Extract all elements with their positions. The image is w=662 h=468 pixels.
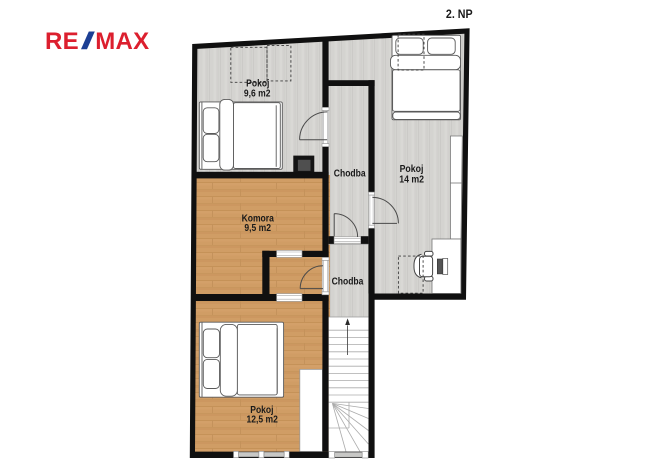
svg-text:Chodba: Chodba xyxy=(334,168,366,180)
svg-text:9,6 m2: 9,6 m2 xyxy=(244,88,271,100)
svg-text:RE: RE xyxy=(45,28,79,55)
svg-text:2. NP: 2. NP xyxy=(446,9,473,22)
svg-text:14 m2: 14 m2 xyxy=(399,174,424,186)
svg-text:MAX: MAX xyxy=(95,28,149,55)
svg-text:9,5 m2: 9,5 m2 xyxy=(244,222,271,234)
svg-text:12,5 m2: 12,5 m2 xyxy=(247,414,278,426)
svg-text:Chodba: Chodba xyxy=(332,276,364,288)
